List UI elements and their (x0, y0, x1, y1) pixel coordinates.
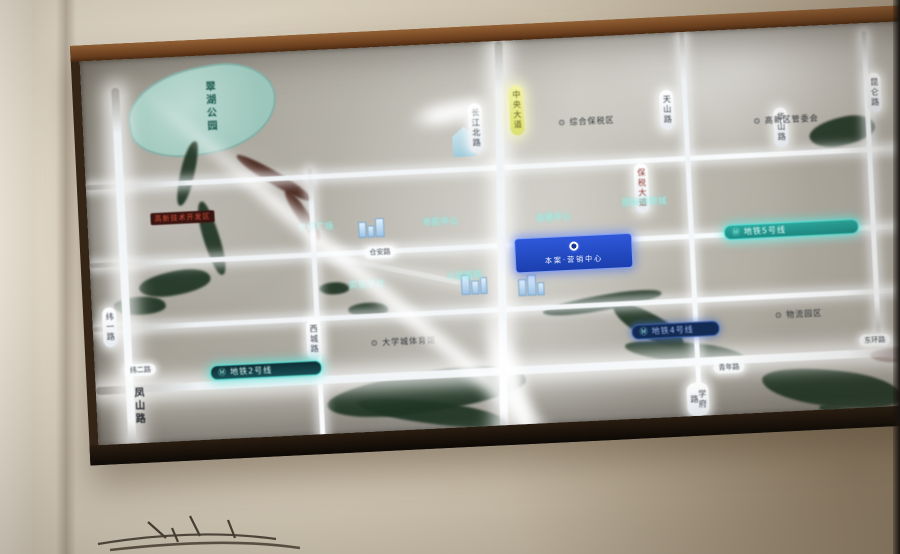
road-pill-label: 纬二路 (125, 363, 157, 377)
poi-label: 世纪广场 (298, 220, 334, 233)
metro-icon: Ⓜ (639, 326, 649, 337)
poi-label: ⊙ 大学城体育馆 (371, 334, 437, 348)
poi-label: ⊙ 物流园区 (775, 308, 823, 321)
park-shape (319, 282, 350, 295)
metro-icon: Ⓜ (732, 226, 742, 237)
road-capsule-label: 中央大道 (508, 85, 524, 136)
metro-line-pill: Ⓜ地铁5号线 (724, 219, 860, 241)
illuminated-map: 翠湖公园 (80, 20, 900, 445)
road-capsule-label: 纬一路 (102, 307, 118, 348)
metro-icon: Ⓜ (218, 367, 228, 378)
road-pill-label: 仓安路 (364, 245, 396, 259)
poi-label: 国际商贸城 (622, 195, 667, 208)
road-capsule-label: 昆仑路 (866, 72, 882, 113)
road-pill-label: 青年路 (713, 360, 745, 374)
poi-label: 会展中心 (536, 211, 572, 224)
wall-decor-plant (86, 508, 336, 554)
road-pill-label: 东环路 (859, 333, 891, 347)
metro-line-label: 地铁2号线 (230, 366, 272, 377)
road-capsule-label: 学府路 (686, 382, 710, 416)
building-icon (518, 274, 546, 296)
poi-label: ⊙ 综合保税区 (558, 114, 615, 128)
wall-left-highlight (0, 0, 60, 554)
street-name-vertical: 凤山路 (130, 387, 147, 427)
project-sign-label: 本案·营销中心 (516, 252, 632, 268)
road-capsule-label: 西城路 (306, 319, 322, 360)
road-capsule-label: 天山路 (659, 90, 675, 131)
road-capsule-label: 长江北路 (467, 103, 483, 154)
project-logo-icon (567, 239, 581, 253)
building-icon (358, 218, 386, 238)
poi-label: 人民医院 (446, 269, 482, 282)
poi-label: 实验学校 (349, 278, 385, 291)
road-vertical (307, 168, 327, 445)
map-board-frame: 翠湖公园 (70, 4, 900, 465)
metro-line-label: 地铁5号线 (744, 225, 786, 236)
poi-label: ⊙ 高新区管委会 (753, 113, 819, 127)
photo-scene: 翠湖公园 (0, 0, 900, 554)
photo-edge-right (893, 0, 900, 554)
metro-line-pill: Ⓜ地铁4号线 (631, 321, 720, 340)
metro-line-label: 地铁4号线 (651, 325, 693, 336)
poi-label: 市民中心 (423, 215, 459, 228)
lake-label: 翠湖公园 (201, 81, 219, 134)
project-sign: 本案·营销中心 (514, 233, 634, 274)
